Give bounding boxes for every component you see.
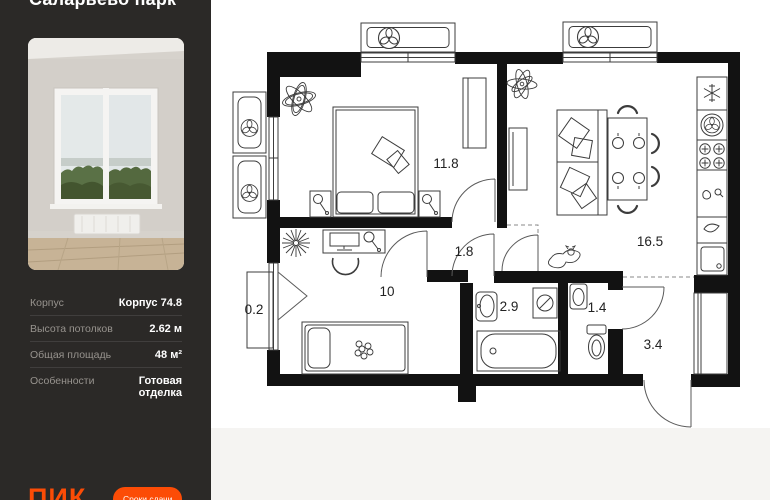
area-label-wc: 1.4 <box>588 300 607 315</box>
detail-label: Высота потолков <box>30 323 113 335</box>
window-top-living <box>563 53 657 62</box>
fan-icon <box>578 27 599 48</box>
fan-icon <box>241 185 258 202</box>
area-label-bedroom: 11.8 <box>433 156 458 171</box>
detail-row-ceiling: Высота потолков 2.62 м <box>30 316 182 342</box>
room-photo <box>28 38 184 270</box>
oven-icon <box>701 114 723 136</box>
room-photo-image <box>28 38 184 270</box>
detail-label: Корпус <box>30 297 64 309</box>
detail-value: Корпус 74.8 <box>119 297 182 309</box>
fan-icon <box>379 28 400 49</box>
info-sidebar: Саларьево парк <box>0 0 211 500</box>
area-label-room: 10 <box>379 284 394 299</box>
area-label-hallway: 1.8 <box>455 244 474 259</box>
detail-value: 48 м² <box>155 349 182 361</box>
pik-logo: ПИК <box>28 483 86 500</box>
detail-row-area: Общая площадь 48 м² <box>30 342 182 368</box>
detail-row-features: Особенности Готовая отделка <box>30 368 182 405</box>
area-label-balcony: 0.2 <box>245 302 264 317</box>
detail-label: Особенности <box>30 375 94 387</box>
property-details: Корпус Корпус 74.8 Высота потолков 2.62 … <box>30 290 182 405</box>
floorplan: 11.8 1.8 16.5 10 0.2 2.9 1.4 3.4 <box>211 0 770 500</box>
fan-icon <box>241 120 258 137</box>
detail-value: 2.62 м <box>149 323 182 335</box>
project-title: Саларьево парк <box>29 0 176 10</box>
area-label-entry-hall: 3.4 <box>644 337 663 352</box>
floorplan-drawing[interactable]: 11.8 1.8 16.5 10 0.2 2.9 1.4 3.4 <box>211 0 770 500</box>
area-label-bathroom: 2.9 <box>500 299 519 314</box>
detail-row-korpus: Корпус Корпус 74.8 <box>30 290 182 316</box>
plant-room <box>282 229 310 257</box>
window-top-bedroom <box>361 53 455 62</box>
window-left-bedroom <box>269 117 278 200</box>
listing-card: Саларьево парк <box>0 0 770 500</box>
detail-label: Общая площадь <box>30 349 111 361</box>
area-label-kitchen-living: 16.5 <box>637 234 663 249</box>
delivery-date-button[interactable]: Сроки сдачи <box>113 487 182 500</box>
detail-value: Готовая отделка <box>94 375 182 399</box>
